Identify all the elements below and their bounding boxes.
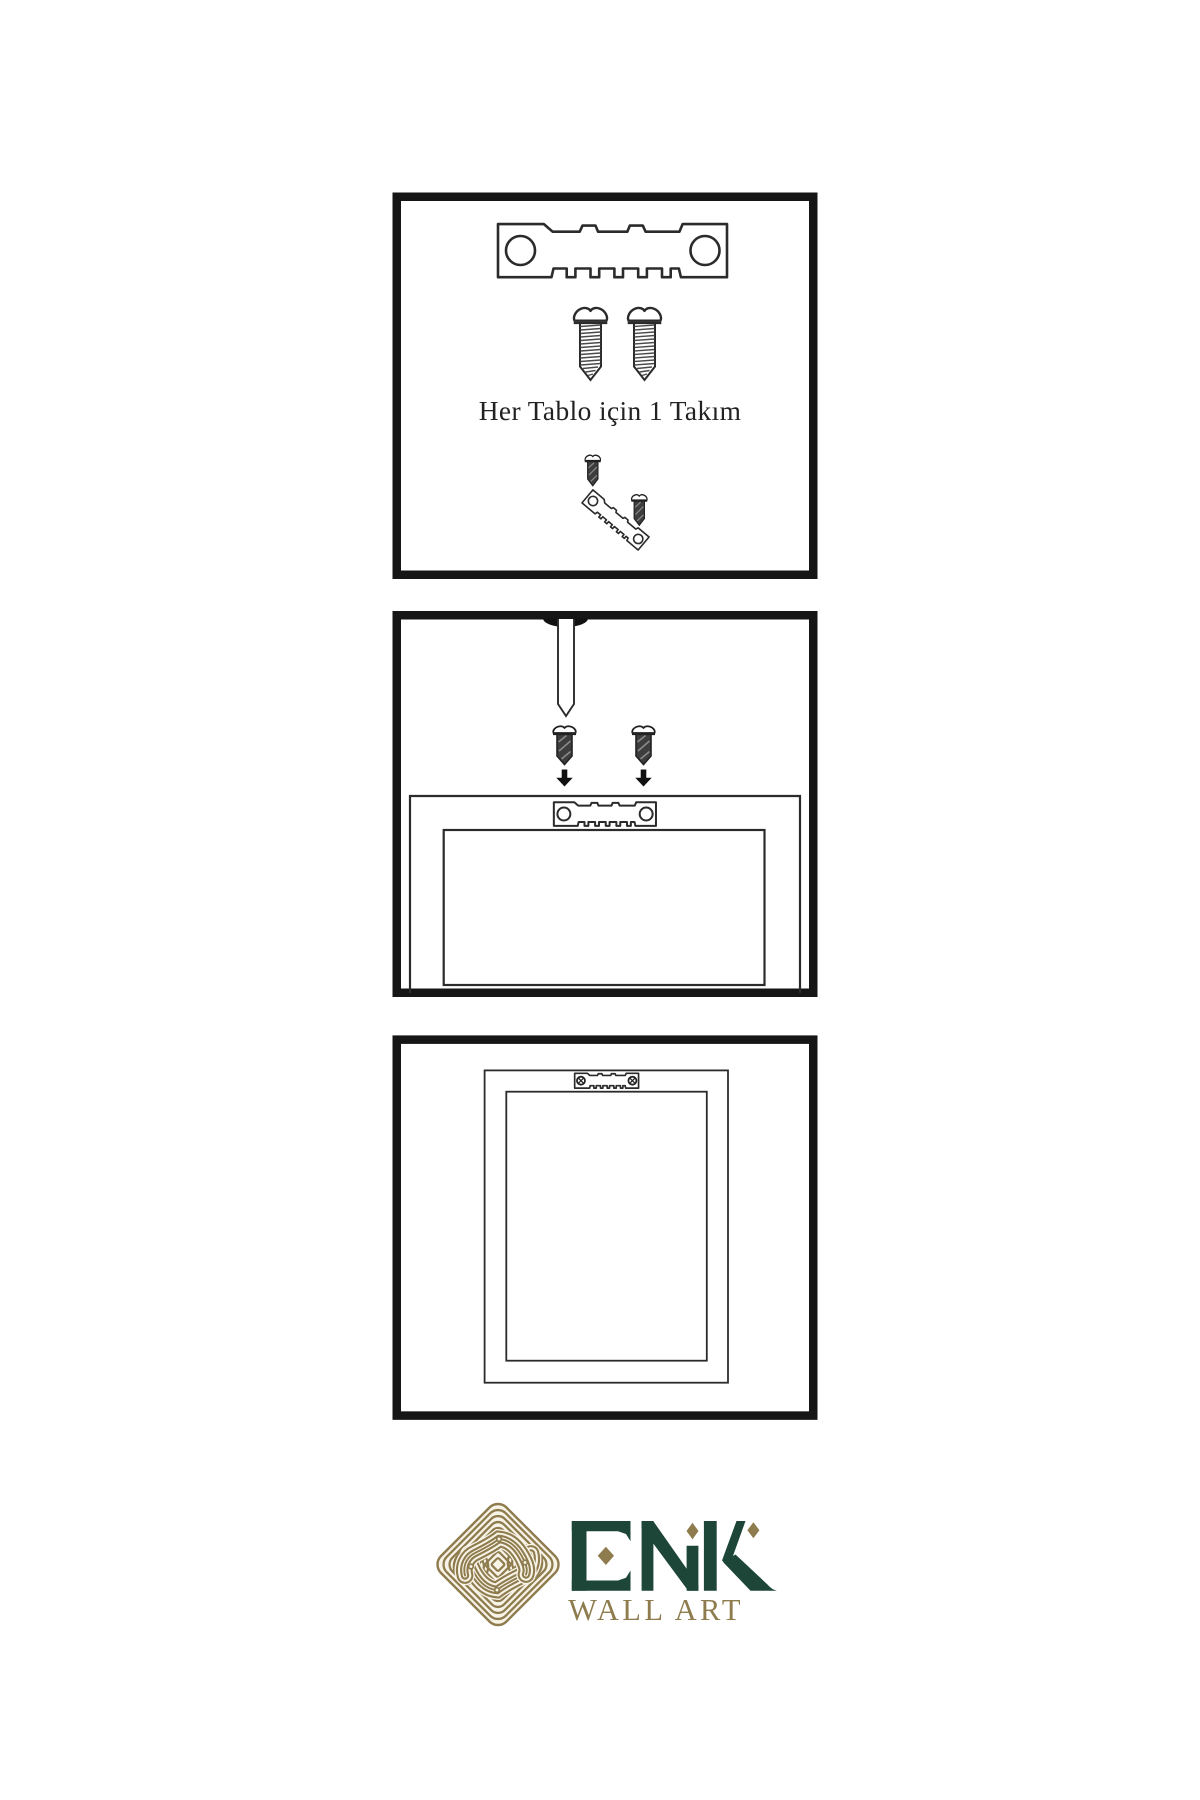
svg-text:Her Tablo için 1 Takım: Her Tablo için 1 Takım	[479, 396, 742, 426]
svg-text:WALL ART: WALL ART	[568, 1593, 744, 1627]
